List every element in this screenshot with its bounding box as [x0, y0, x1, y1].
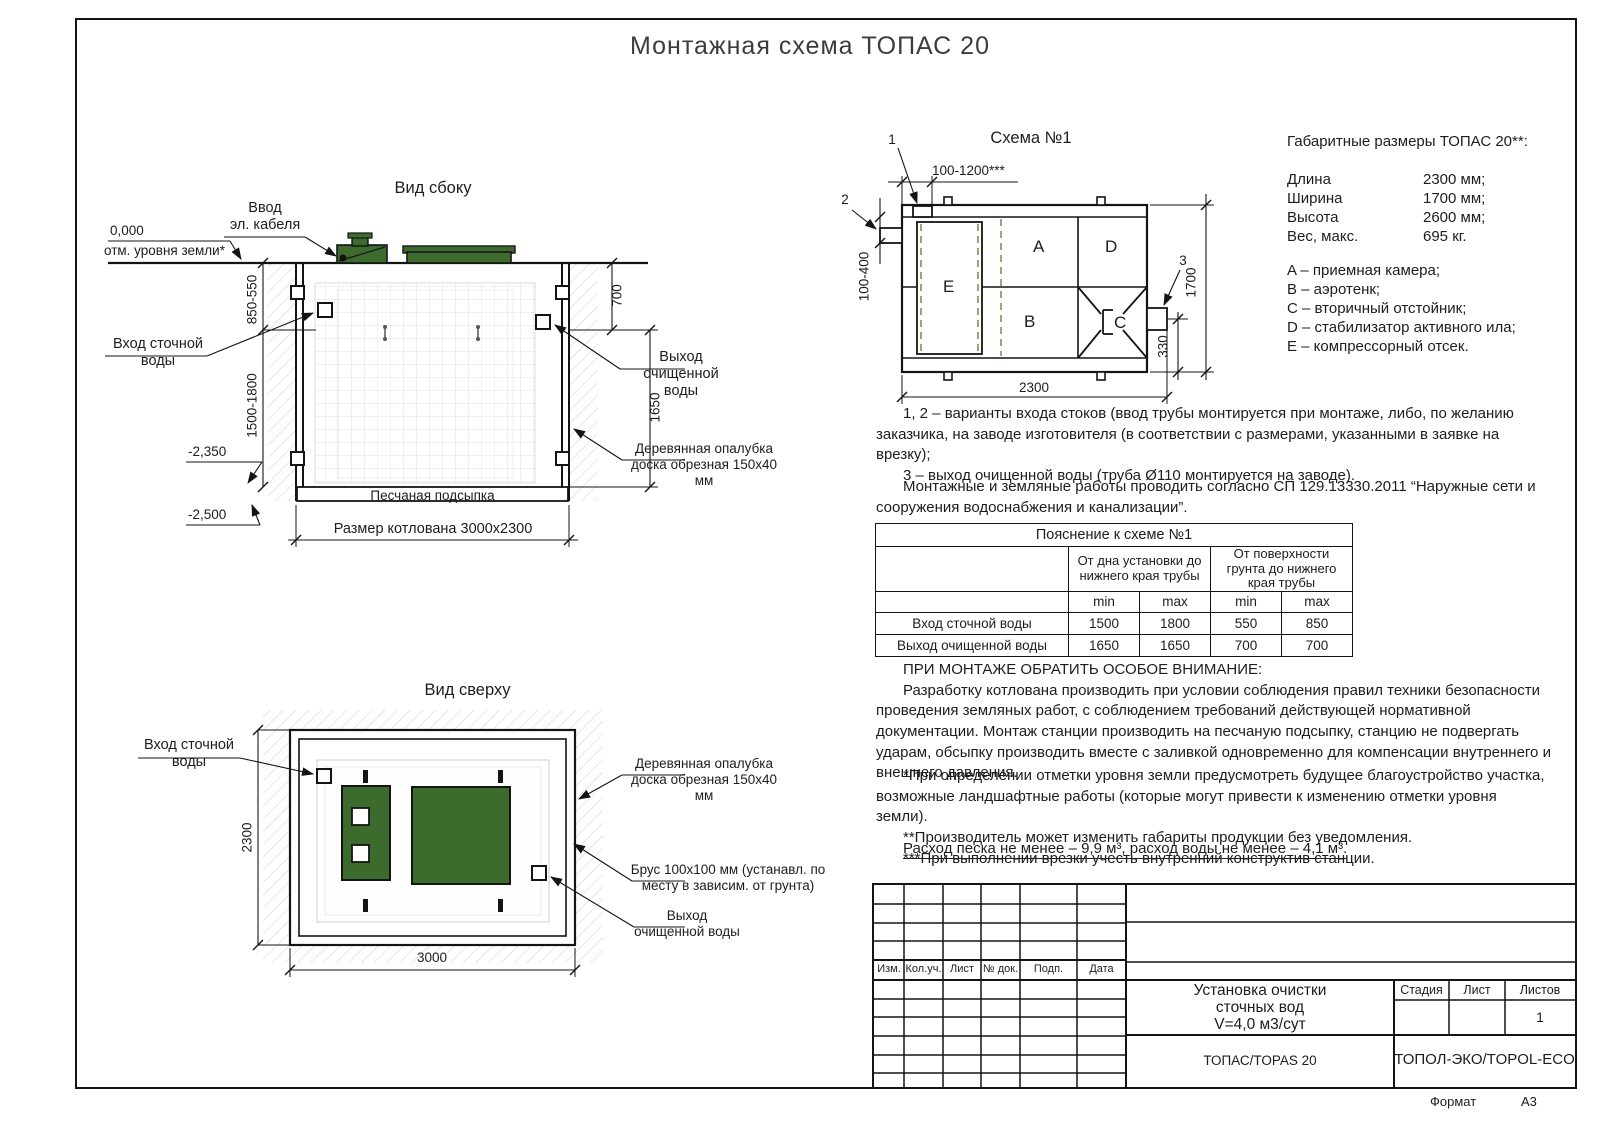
drawing-sheet: Монтажная схема ТОПАС 20	[0, 0, 1600, 1131]
beam-label: Брус 100x100 мм (устанавл. по месту в за…	[630, 862, 826, 894]
company-name: ТОПОЛ-ЭКО/TOPOL-ECO	[1394, 1051, 1575, 1068]
works-note: Монтажные и земляные работы проводить со…	[876, 477, 1548, 518]
chamber-d-label: D	[1105, 237, 1117, 257]
dim-2300-top-view: 2300	[240, 793, 255, 883]
cell-value: 1800	[1140, 612, 1211, 634]
note-variants-12: 1, 2 – варианты входа стоков (ввод трубы…	[876, 404, 1548, 466]
empty-cell	[876, 591, 1069, 612]
top-view-title: Вид сверху	[400, 681, 535, 700]
attention-heading: ПРИ МОНТАЖЕ ОБРАТИТЬ ОСОБОЕ ВНИМАНИЕ:	[876, 660, 1552, 681]
side-view-title: Вид сбоку	[368, 179, 498, 198]
product-name: ТОПАС/TOPAS 20	[1126, 1053, 1394, 1068]
outlet-label-top: Выход очищенной воды	[632, 908, 742, 940]
document-title: Установка очистки сточных вод V=4,0 м3/с…	[1126, 982, 1394, 1033]
dim-2300-scheme: 2300	[1004, 380, 1064, 395]
inlet-label-side: Вход сточной воды	[108, 336, 208, 370]
dim-1500-1800: 1500-1800	[245, 361, 260, 451]
rev-header-list: Лист	[943, 963, 981, 975]
spec-value: 1700 мм;	[1423, 190, 1485, 207]
dim-100-1200: 100-1200***	[932, 163, 1022, 178]
spec-row: Ширина1700 мм;	[1287, 190, 1577, 207]
spec-value: 2300 мм;	[1423, 171, 1485, 188]
rev-header-podp: Подп.	[1020, 963, 1077, 975]
cell-value: 700	[1211, 634, 1282, 656]
chamber-legend-a: A – приемная камера;	[1287, 262, 1440, 279]
rev-header-data: Дата	[1077, 963, 1126, 975]
dim-330: 330	[1156, 302, 1171, 392]
table-corner-cell	[876, 547, 1069, 592]
min-header: min	[1211, 591, 1282, 612]
dim-850-550: 850-550	[245, 255, 260, 345]
consumption-note: Расход песка не менее – 9,9 м³, расход в…	[903, 840, 1347, 857]
pit-size-label: Размер котлована 3000x2300	[300, 521, 566, 537]
chamber-b-label: B	[1024, 312, 1035, 332]
chamber-e-label: E	[943, 277, 954, 297]
rev-header-koluch: Кол.уч.	[904, 963, 943, 975]
sheet-header: Лист	[1449, 983, 1505, 997]
dim-1650: 1650	[648, 363, 663, 453]
format-label: Формат	[1430, 1094, 1476, 1109]
spec-name: Ширина	[1287, 190, 1423, 207]
chamber-legend-c: C – вторичный отстойник;	[1287, 300, 1466, 317]
formwork-label-side: Деревянная опалубка доска обрезная 150x4…	[620, 441, 788, 490]
table-row: Вход сточной воды 1500 1800 550 850	[876, 612, 1353, 634]
dim-100-400: 100-400	[857, 232, 872, 322]
max-header: max	[1282, 591, 1353, 612]
spec-value: 695 кг.	[1423, 228, 1467, 245]
sheets-count: 1	[1505, 1009, 1575, 1025]
table-row: Выход очищенной воды 1650 1650 700 700	[876, 634, 1353, 656]
rev-header-izm: Изм.	[874, 963, 904, 975]
overall-dimensions-title: Габаритные размеры ТОПАС 20**:	[1287, 133, 1567, 150]
spec-row: Вес, макс.695 кг.	[1287, 228, 1577, 245]
cell-value: 1650	[1140, 634, 1211, 656]
scheme-explanation-table: Пояснение к схеме №1 От дна установки до…	[875, 523, 1353, 657]
rev-header-ndok: № док.	[981, 963, 1020, 975]
level-minus-2350: -2,350	[188, 444, 258, 459]
callout-1: 1	[885, 132, 899, 147]
ground-level-caption: отм. уровня земли*	[104, 243, 244, 259]
max-header: max	[1140, 591, 1211, 612]
chamber-legend-b: B – аэротенк;	[1287, 281, 1380, 298]
outlet-label-side: Выход очищенной воды	[620, 349, 742, 400]
dim-700: 700	[610, 251, 625, 341]
footnote-1: *При определении отметки уровня земли пр…	[876, 766, 1552, 828]
cell-value: 550	[1211, 612, 1282, 634]
spec-name: Длина	[1287, 171, 1423, 188]
callout-2: 2	[838, 192, 852, 207]
spec-value: 2600 мм;	[1423, 209, 1485, 226]
min-header: min	[1069, 591, 1140, 612]
sheets-header: Листов	[1505, 983, 1575, 997]
spec-name: Высота	[1287, 209, 1423, 226]
cell-value: 850	[1282, 612, 1353, 634]
inlet-variants-note: 1, 2 – варианты входа стоков (ввод трубы…	[876, 404, 1548, 487]
level-minus-2500: -2,500	[188, 507, 258, 522]
chamber-legend-d: D – стабилизатор активного ила;	[1287, 319, 1516, 336]
col-group-from-surface: От поверхности грунта до нижнего края тр…	[1211, 547, 1353, 592]
cell-value: 700	[1282, 634, 1353, 656]
format-value: А3	[1521, 1094, 1537, 1109]
table-title: Пояснение к схеме №1	[876, 524, 1353, 547]
cable-entry-label: Ввод эл. кабеля	[224, 200, 306, 234]
stage-header: Стадия	[1394, 983, 1449, 997]
spec-name: Вес, макс.	[1287, 228, 1423, 245]
scheme-title: Схема №1	[958, 129, 1104, 148]
chamber-c-label: C	[1114, 313, 1126, 333]
cell-value: 1500	[1069, 612, 1140, 634]
sand-bed-label: Песчаная подсыпка	[297, 488, 568, 504]
row-label: Вход сточной воды	[876, 612, 1069, 634]
spec-row: Высота2600 мм;	[1287, 209, 1577, 226]
zero-level-mark: 0,000	[110, 223, 170, 238]
inlet-label-top: Вход сточной воды	[138, 737, 240, 771]
row-label: Выход очищенной воды	[876, 634, 1069, 656]
chamber-a-label: A	[1033, 237, 1044, 257]
chamber-legend-e: E – компрессорный отсек.	[1287, 338, 1469, 355]
page-title: Монтажная схема ТОПАС 20	[600, 32, 1020, 61]
formwork-label-top: Деревянная опалубка доска обрезная 150x4…	[620, 756, 788, 805]
col-group-from-bottom: От дна установки до нижнего края трубы	[1069, 547, 1211, 592]
cell-value: 1650	[1069, 634, 1140, 656]
dim-1700: 1700	[1184, 238, 1199, 328]
title-block: Изм. Кол.уч. Лист № док. Подп. Дата Уста…	[872, 883, 1577, 1089]
dim-3000: 3000	[402, 950, 462, 965]
spec-row: Длина2300 мм;	[1287, 171, 1577, 188]
